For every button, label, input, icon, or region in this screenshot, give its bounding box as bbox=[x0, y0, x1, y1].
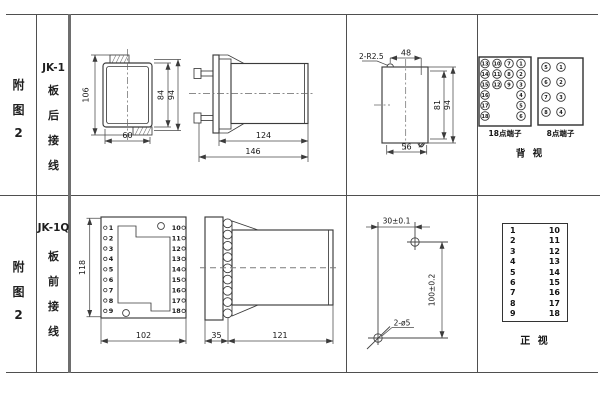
wiring-char: 后 bbox=[48, 107, 59, 123]
terminal-number: 1 bbox=[559, 65, 563, 71]
terminal-number: 15 bbox=[172, 276, 182, 284]
dim-width: 60 bbox=[122, 131, 132, 140]
dim-outer-height: 94 bbox=[443, 100, 452, 110]
terminal-number: 13 bbox=[482, 61, 489, 67]
terminal-number: 1 bbox=[510, 227, 516, 235]
terminal-number: 6 bbox=[510, 279, 516, 287]
terminal-number: 16 bbox=[482, 93, 489, 99]
dim-height: 118 bbox=[78, 260, 87, 275]
jk1-rear-view-drawing: 106 84 94 60 bbox=[75, 40, 190, 160]
jk1q-side-outline bbox=[200, 217, 340, 320]
jk1q-side-view-drawing: 35 121 bbox=[200, 210, 345, 350]
terminal-number: 1 bbox=[519, 61, 523, 67]
figure-label-top: 附 图 2 bbox=[0, 76, 37, 140]
terminal-number: 16 bbox=[549, 289, 560, 297]
wiring-char: 接 bbox=[48, 298, 59, 314]
dim-outer-height: 94 bbox=[167, 90, 176, 100]
terminal-number: 9 bbox=[510, 310, 516, 318]
terminal-number: 17 bbox=[482, 103, 489, 109]
table-border-top bbox=[6, 14, 598, 15]
terminal-number: 12 bbox=[494, 82, 501, 88]
dim-body-depth: 121 bbox=[272, 331, 287, 340]
jk1-panel-cutout-drawing: 48 2-R2.5 81 94 56 bbox=[350, 45, 470, 165]
terminal-number: 4 bbox=[510, 258, 516, 266]
wiring-char: 板 bbox=[48, 82, 59, 98]
hole-diameter-note: 2-ø5 bbox=[394, 319, 411, 328]
terminal-number: 5 bbox=[510, 269, 516, 277]
figure-char: 2 bbox=[14, 126, 22, 140]
terminal-number: 12 bbox=[549, 248, 560, 256]
terminal-number: 4 bbox=[559, 110, 563, 116]
terminal-number: 3 bbox=[559, 95, 563, 101]
terminal-number: 8 bbox=[109, 297, 114, 305]
front-view-label: 正 视 bbox=[502, 332, 568, 347]
terminal-number: 9 bbox=[507, 82, 511, 88]
terminal-number: 8 bbox=[544, 110, 548, 116]
terminal-row: 211 bbox=[510, 237, 560, 245]
terminal-number: 2 bbox=[510, 237, 516, 245]
jk1-rear-outline bbox=[103, 49, 152, 141]
dim-top-width: 48 bbox=[401, 49, 411, 58]
terminal-number: 11 bbox=[494, 72, 501, 78]
terminal-number: 16 bbox=[172, 286, 182, 294]
terminal-number: 8 bbox=[510, 300, 516, 308]
drill-dimensions: 30±0.1 100±0.2 2-ø5 bbox=[366, 217, 442, 339]
mounting-hole bbox=[123, 310, 130, 317]
back-view-terminals: 13 14 15 16 17 18 10 11 12 7 8 9 1 2 3 4… bbox=[475, 50, 600, 165]
terminal-number: 3 bbox=[519, 82, 523, 88]
terminal-number: 2 bbox=[559, 80, 563, 86]
terminal-row: 716 bbox=[510, 289, 560, 297]
dim-inner-height: 84 bbox=[157, 90, 166, 100]
terminal-number: 18 bbox=[482, 114, 489, 120]
terminal-number: 17 bbox=[172, 297, 181, 305]
jk1-side-dimensions: 124 146 bbox=[199, 123, 308, 162]
terminal-block-18: 13 14 15 16 17 18 10 11 12 7 8 9 1 2 3 4… bbox=[479, 57, 531, 126]
terminal-number: 15 bbox=[482, 82, 489, 88]
terminal-row: 110 bbox=[510, 227, 560, 235]
terminal-number: 4 bbox=[109, 255, 114, 263]
terminal-number: 14 bbox=[482, 72, 489, 78]
front-view-terminal-table: 110 211 312 413 514 615 716 817 918 bbox=[502, 223, 568, 322]
wiring-char: 板 bbox=[48, 248, 59, 264]
terminal-number: 11 bbox=[549, 237, 560, 245]
terminal-number: 2 bbox=[519, 72, 523, 78]
terminal-number: 5 bbox=[109, 266, 114, 274]
figure-char: 图 bbox=[12, 283, 24, 300]
terminal-number: 2 bbox=[109, 234, 114, 242]
model-label-jk1q: JK-1Q bbox=[37, 222, 70, 234]
wiring-char: 接 bbox=[48, 132, 59, 148]
terminal-number: 6 bbox=[109, 276, 114, 284]
terminal-number: 3 bbox=[510, 248, 516, 256]
jk1q-front-view-drawing: 1 2 3 4 5 6 7 8 9 10 11 12 13 14 15 16 1… bbox=[75, 210, 200, 350]
terminal-18-label: 18点端子 bbox=[489, 128, 522, 138]
back-view-label: 背 视 bbox=[516, 148, 544, 160]
jk1-side-view-drawing: 124 146 bbox=[188, 45, 315, 165]
terminal-number: 5 bbox=[519, 103, 523, 109]
wiring-label-top: 板 后 接 线 bbox=[37, 82, 70, 173]
terminal-number: 12 bbox=[172, 245, 181, 253]
terminal-number: 13 bbox=[172, 255, 181, 263]
cutout-outline bbox=[374, 59, 428, 151]
terminal-number: 8 bbox=[507, 72, 511, 78]
figure-char: 图 bbox=[12, 101, 24, 118]
terminal-number: 10 bbox=[549, 227, 560, 235]
terminal-number: 15 bbox=[549, 279, 560, 287]
terminal-number: 7 bbox=[510, 289, 516, 297]
table-border-middle bbox=[0, 195, 600, 196]
model-label-jk1: JK-1 bbox=[37, 62, 70, 74]
figure-label-bottom: 附 图 2 bbox=[0, 258, 37, 322]
dim-flange-depth: 35 bbox=[211, 331, 221, 340]
terminal-number: 14 bbox=[172, 266, 182, 274]
terminal-row: 312 bbox=[510, 248, 560, 256]
terminal-number: 10 bbox=[172, 224, 182, 232]
terminal-number: 13 bbox=[549, 258, 560, 266]
terminal-number: 11 bbox=[172, 234, 182, 242]
terminal-number: 6 bbox=[544, 80, 548, 86]
terminal-number: 10 bbox=[494, 61, 501, 67]
table-divider-3 bbox=[346, 14, 347, 373]
terminal-number: 9 bbox=[109, 307, 114, 315]
terminal-number: 7 bbox=[544, 95, 548, 101]
jk1-side-outline bbox=[189, 55, 314, 133]
terminal-number: 18 bbox=[549, 310, 560, 318]
wiring-label-bottom: 板 前 接 线 bbox=[37, 248, 70, 339]
dim-overall-height: 106 bbox=[82, 87, 91, 102]
terminal-number: 14 bbox=[549, 269, 560, 277]
dim-width: 102 bbox=[136, 331, 151, 340]
terminal-8-label: 8点端子 bbox=[547, 128, 575, 138]
terminal-number: 18 bbox=[172, 307, 182, 315]
figure-page: 附 图 2 JK-1 板 后 接 线 附 图 2 JK-1Q 板 前 接 线 bbox=[0, 0, 600, 400]
wiring-char: 前 bbox=[48, 273, 59, 289]
terminal-block-8: 5 6 7 8 1 2 3 4 bbox=[538, 58, 583, 125]
corner-radius-note: 2-R2.5 bbox=[359, 52, 384, 61]
terminal-row: 615 bbox=[510, 279, 560, 287]
wiring-char: 线 bbox=[48, 323, 59, 339]
terminal-row: 413 bbox=[510, 258, 560, 266]
terminal-row: 514 bbox=[510, 269, 560, 277]
table-border-bottom bbox=[6, 372, 598, 373]
dim-bottom-width: 56 bbox=[401, 143, 411, 152]
dim-body-depth: 124 bbox=[256, 131, 271, 140]
terminal-number: 3 bbox=[109, 245, 114, 253]
wiring-char: 线 bbox=[48, 157, 59, 173]
dim-hole-v-dist: 100±0.2 bbox=[428, 274, 437, 307]
jk1-rear-dimensions: 106 84 94 60 bbox=[82, 55, 182, 144]
terminal-number: 7 bbox=[507, 61, 511, 67]
jk1q-drilling-drawing: 30±0.1 100±0.2 2-ø5 bbox=[350, 210, 478, 350]
dim-hole-h-dist: 30±0.1 bbox=[383, 217, 411, 226]
figure-char: 附 bbox=[12, 76, 24, 93]
terminal-number: 5 bbox=[544, 65, 548, 71]
terminal-row: 918 bbox=[510, 310, 560, 318]
cutout-dimensions: 48 2-R2.5 81 94 56 bbox=[359, 49, 456, 155]
terminal-number: 17 bbox=[549, 300, 560, 308]
terminal-row: 817 bbox=[510, 300, 560, 308]
jk1q-front-terminals: 1 2 3 4 5 6 7 8 9 10 11 12 13 14 15 16 1… bbox=[104, 224, 186, 315]
dim-overall-depth: 146 bbox=[245, 147, 260, 156]
terminal-number: 4 bbox=[519, 93, 523, 99]
figure-char: 附 bbox=[12, 258, 24, 275]
mounting-hole bbox=[158, 223, 165, 230]
dim-inner-height: 81 bbox=[433, 100, 442, 110]
terminal-number: 1 bbox=[109, 224, 114, 232]
terminal-number: 7 bbox=[109, 286, 114, 294]
figure-char: 2 bbox=[14, 308, 22, 322]
terminal-number: 6 bbox=[519, 114, 523, 120]
